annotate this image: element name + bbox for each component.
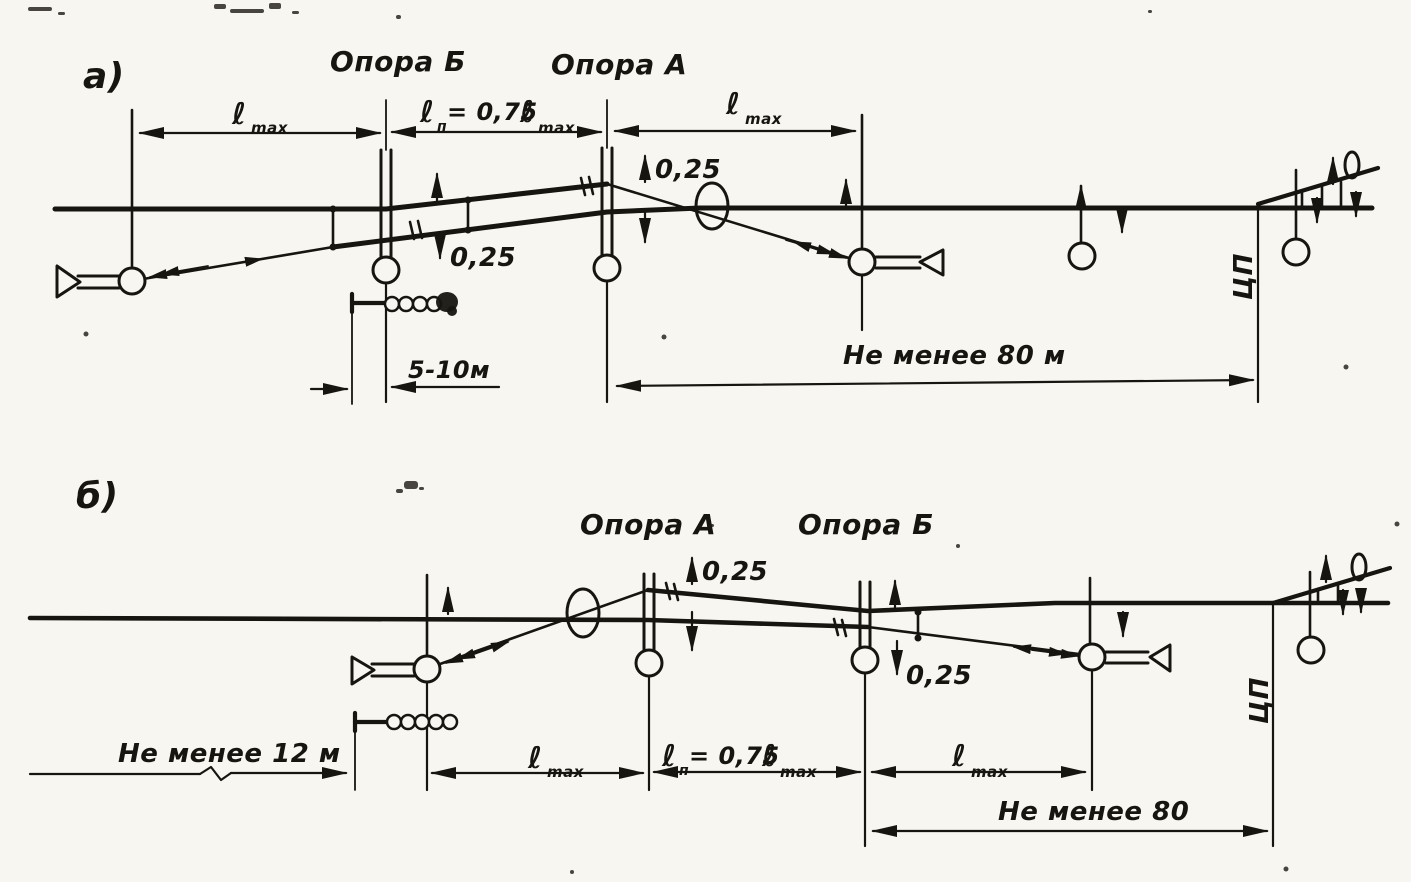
anchor-support-right-b	[1014, 578, 1170, 790]
panel-b: б) Опора А Опора Б 0,25 0,25 Не менее 12…	[30, 476, 1390, 846]
span-left-ell-b: ℓ	[527, 741, 543, 776]
span-mid-sub2-a: max	[538, 119, 576, 137]
span-mid-ell-a: ℓ	[419, 95, 435, 130]
catenary-anchor-section-diagram: а) Опора Б Опора А ℓ max ℓ п = 0,75 ℓ ma…	[0, 0, 1411, 882]
span-mid-sub2-b: max	[780, 763, 818, 781]
intermediate-support-a	[1069, 186, 1122, 269]
support-a-b	[636, 574, 662, 790]
support-b-b	[852, 582, 878, 846]
span-mid-sub-a: п	[437, 119, 447, 135]
anchor-support-left-a	[57, 110, 262, 297]
anchor-branch-right-b	[868, 627, 1079, 654]
tension-weights-b	[355, 713, 457, 790]
anchor-branch-left-b	[440, 590, 648, 664]
span-left-sub-a: max	[251, 119, 289, 137]
span-mid-ell-b: ℓ	[661, 739, 677, 774]
span-right-ell-b: ℓ	[951, 739, 967, 774]
offset-value-b-b: 0,25	[906, 661, 972, 691]
offset-value-a-a: 0,25	[655, 155, 721, 185]
contact-wire-new-section-a	[333, 208, 1372, 247]
weights-offset-label: 5-10м	[408, 356, 490, 384]
anchor-support-right-a	[786, 115, 943, 330]
support-a-label-a: Опора А	[551, 48, 687, 81]
span-right-sub-b: max	[971, 763, 1009, 781]
guy-anchor-icon	[1150, 645, 1170, 671]
panel-b-tag: б)	[76, 476, 119, 517]
support-b-label-b: Опора Б	[798, 508, 934, 541]
span-mid-ell2-b: ℓ	[761, 739, 777, 774]
span-mid-sub-b: п	[679, 763, 689, 779]
support-b-label-a: Опора Б	[330, 45, 466, 78]
cp-label-a: ЦП	[1229, 253, 1259, 300]
min-distance-label-a: Не менее 80 м	[843, 341, 1066, 371]
contact-wire-old-section-a	[55, 184, 607, 209]
guy-anchor-icon	[920, 250, 943, 275]
support-a-a	[594, 100, 620, 402]
support-b-a	[373, 100, 399, 402]
jumper-b	[915, 609, 922, 642]
offset-value-a-b: 0,25	[702, 557, 768, 587]
panel-a: а) Опора Б Опора А ℓ max ℓ п = 0,75 ℓ ma…	[55, 45, 1378, 404]
span-mid-ell2-a: ℓ	[519, 95, 535, 130]
support-near-cp-b	[1298, 572, 1324, 663]
support-near-cp-a	[1283, 170, 1309, 265]
offset-value-b-a: 0,25	[450, 243, 516, 273]
span-left-ell-a: ℓ	[231, 97, 247, 132]
cp-label-b: ЦП	[1245, 677, 1275, 724]
min-left-label-b: Не менее 12 м	[118, 739, 341, 769]
scanned-diagram-page: а) Опора Б Опора А ℓ max ℓ п = 0,75 ℓ ma…	[0, 0, 1411, 882]
guy-anchor-icon	[352, 657, 374, 684]
span-right-ell-a: ℓ	[725, 87, 741, 122]
far-right-anchor-branch-a	[1258, 152, 1378, 222]
span-left-sub-b: max	[547, 763, 585, 781]
support-a-label-b: Опора А	[580, 508, 716, 541]
anchor-support-left-b	[352, 575, 508, 790]
span-right-sub-a: max	[745, 110, 783, 128]
min-distance-label-b: Не менее 80	[998, 797, 1189, 827]
contact-wire-old-section-b	[30, 618, 868, 627]
guy-anchor-icon	[57, 266, 80, 297]
panel-a-tag: а)	[83, 56, 125, 97]
